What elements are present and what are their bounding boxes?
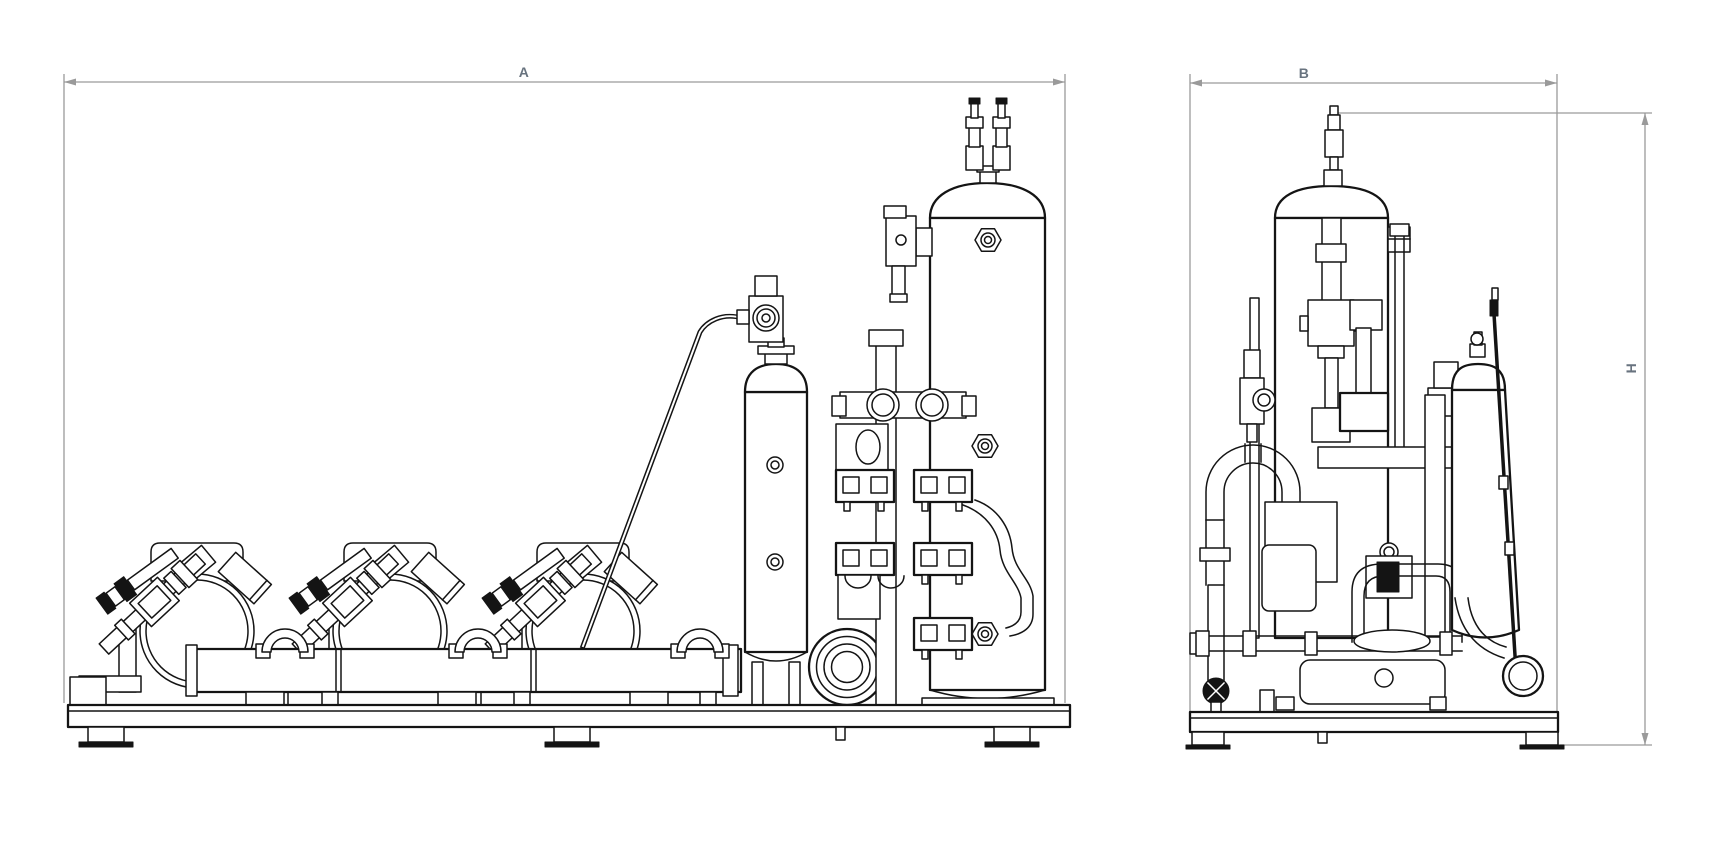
vessel-top-valves — [966, 98, 1010, 170]
front-view — [68, 98, 1070, 747]
liquid-receiver — [737, 276, 807, 705]
receiver-solenoid-valve — [737, 276, 783, 342]
vessel-ball-valve — [884, 206, 932, 302]
side-vessel-top-valve — [1324, 106, 1343, 186]
side-left-valve — [1240, 350, 1275, 442]
dimension-a-label: A — [519, 64, 530, 80]
compressor-rack-drawing: A B H — [0, 0, 1733, 845]
dimension-b-label: B — [1299, 65, 1310, 81]
base-frame-side — [1186, 712, 1564, 749]
base-frame-front — [68, 705, 1070, 747]
technical-drawing-page: A B H — [0, 0, 1733, 845]
manifold-elbow — [809, 629, 885, 705]
side-oil-vessel — [1452, 288, 1519, 688]
dimension-h-label: H — [1623, 363, 1639, 374]
side-view — [1186, 106, 1564, 749]
